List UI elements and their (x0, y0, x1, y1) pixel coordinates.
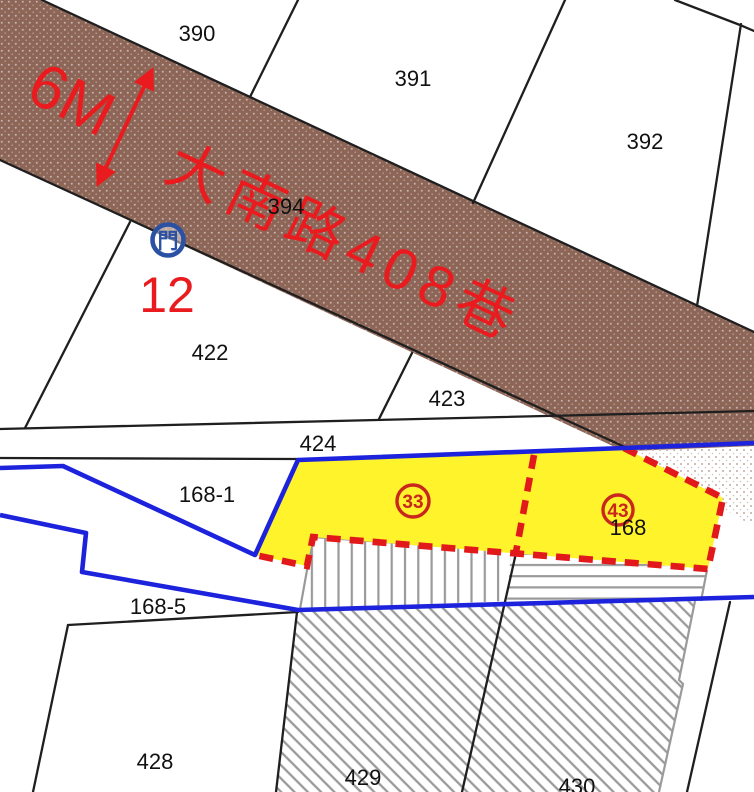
parcel-label-168-5: 168-5 (130, 594, 186, 619)
parcel-label-390: 390 (179, 21, 216, 46)
parcel-label-391: 391 (395, 66, 432, 91)
boundary-424-strip-bottom (0, 458, 298, 459)
parcel-label-428: 428 (137, 749, 174, 774)
gate-marker: 門 (153, 225, 184, 256)
gate-symbol: 門 (158, 230, 179, 253)
parcel-label-168: 168 (610, 515, 647, 540)
parcel-label-423: 423 (429, 386, 466, 411)
marker-33-label: 33 (402, 492, 423, 513)
parcel-label-430: 430 (559, 774, 596, 792)
parcel-label-422: 422 (192, 340, 229, 365)
address-number-label: 12 (139, 267, 195, 323)
parcel-label-168-1: 168-1 (179, 482, 235, 507)
parcel-label-429: 429 (345, 765, 382, 790)
parcel-label-392: 392 (627, 129, 664, 154)
cadastral-map: 大南路408巷 6M 12 門 33 43 390 391 392 394 42… (0, 0, 754, 792)
parcel-label-424: 424 (300, 431, 337, 456)
parcel-label-394: 394 (268, 194, 305, 219)
diagonal-hatch-area (276, 601, 695, 792)
